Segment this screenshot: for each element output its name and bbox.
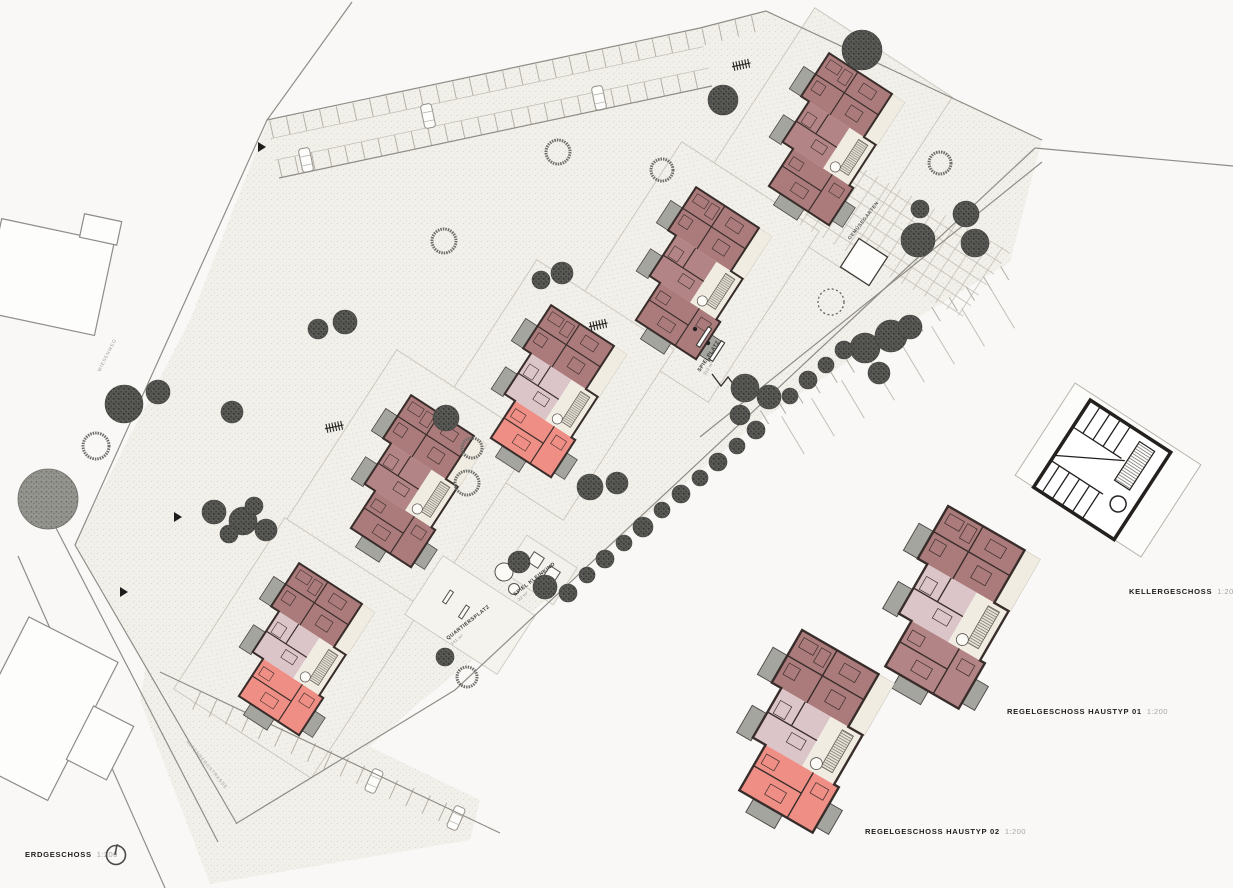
caption-haustyp-01-label: REGELGESCHOSS HAUSTYP 01	[1007, 707, 1142, 716]
neighbor-building-lower	[0, 617, 156, 820]
north-arrow-icon	[103, 842, 129, 868]
site-plan-sheet: SPIELPLATZ 313 m² QUARTIERSPLATZ 141 m² …	[0, 0, 1233, 888]
caption-haustyp-02-label: REGELGESCHOSS HAUSTYP 02	[865, 827, 1000, 836]
caption-kellergeschoss: KELLERGESCHOSS1:200	[1129, 588, 1233, 596]
caption-haustyp-01: REGELGESCHOSS HAUSTYP 011:200	[1007, 708, 1168, 716]
neighbor-building-upper	[0, 197, 122, 336]
caption-kellergeschoss-label: KELLERGESCHOSS	[1129, 587, 1212, 596]
label-street-1: WIESENWEG	[96, 338, 117, 373]
caption-haustyp-02-scale: 1:200	[1005, 827, 1026, 836]
caption-erdgeschoss-label: ERDGESCHOSS	[25, 850, 92, 859]
caption-haustyp-01-scale: 1:200	[1147, 707, 1168, 716]
floorplan-haustyp-02	[695, 622, 911, 854]
site-plan-drawing: SPIELPLATZ 313 m² QUARTIERSPLATZ 141 m² …	[0, 0, 1233, 888]
floorplan-kellergeschoss	[1015, 383, 1201, 557]
svg-text:WIESENWEG: WIESENWEG	[96, 338, 117, 373]
caption-haustyp-02: REGELGESCHOSS HAUSTYP 021:200	[865, 828, 1026, 836]
caption-kellergeschoss-scale: 1:200	[1217, 587, 1233, 596]
